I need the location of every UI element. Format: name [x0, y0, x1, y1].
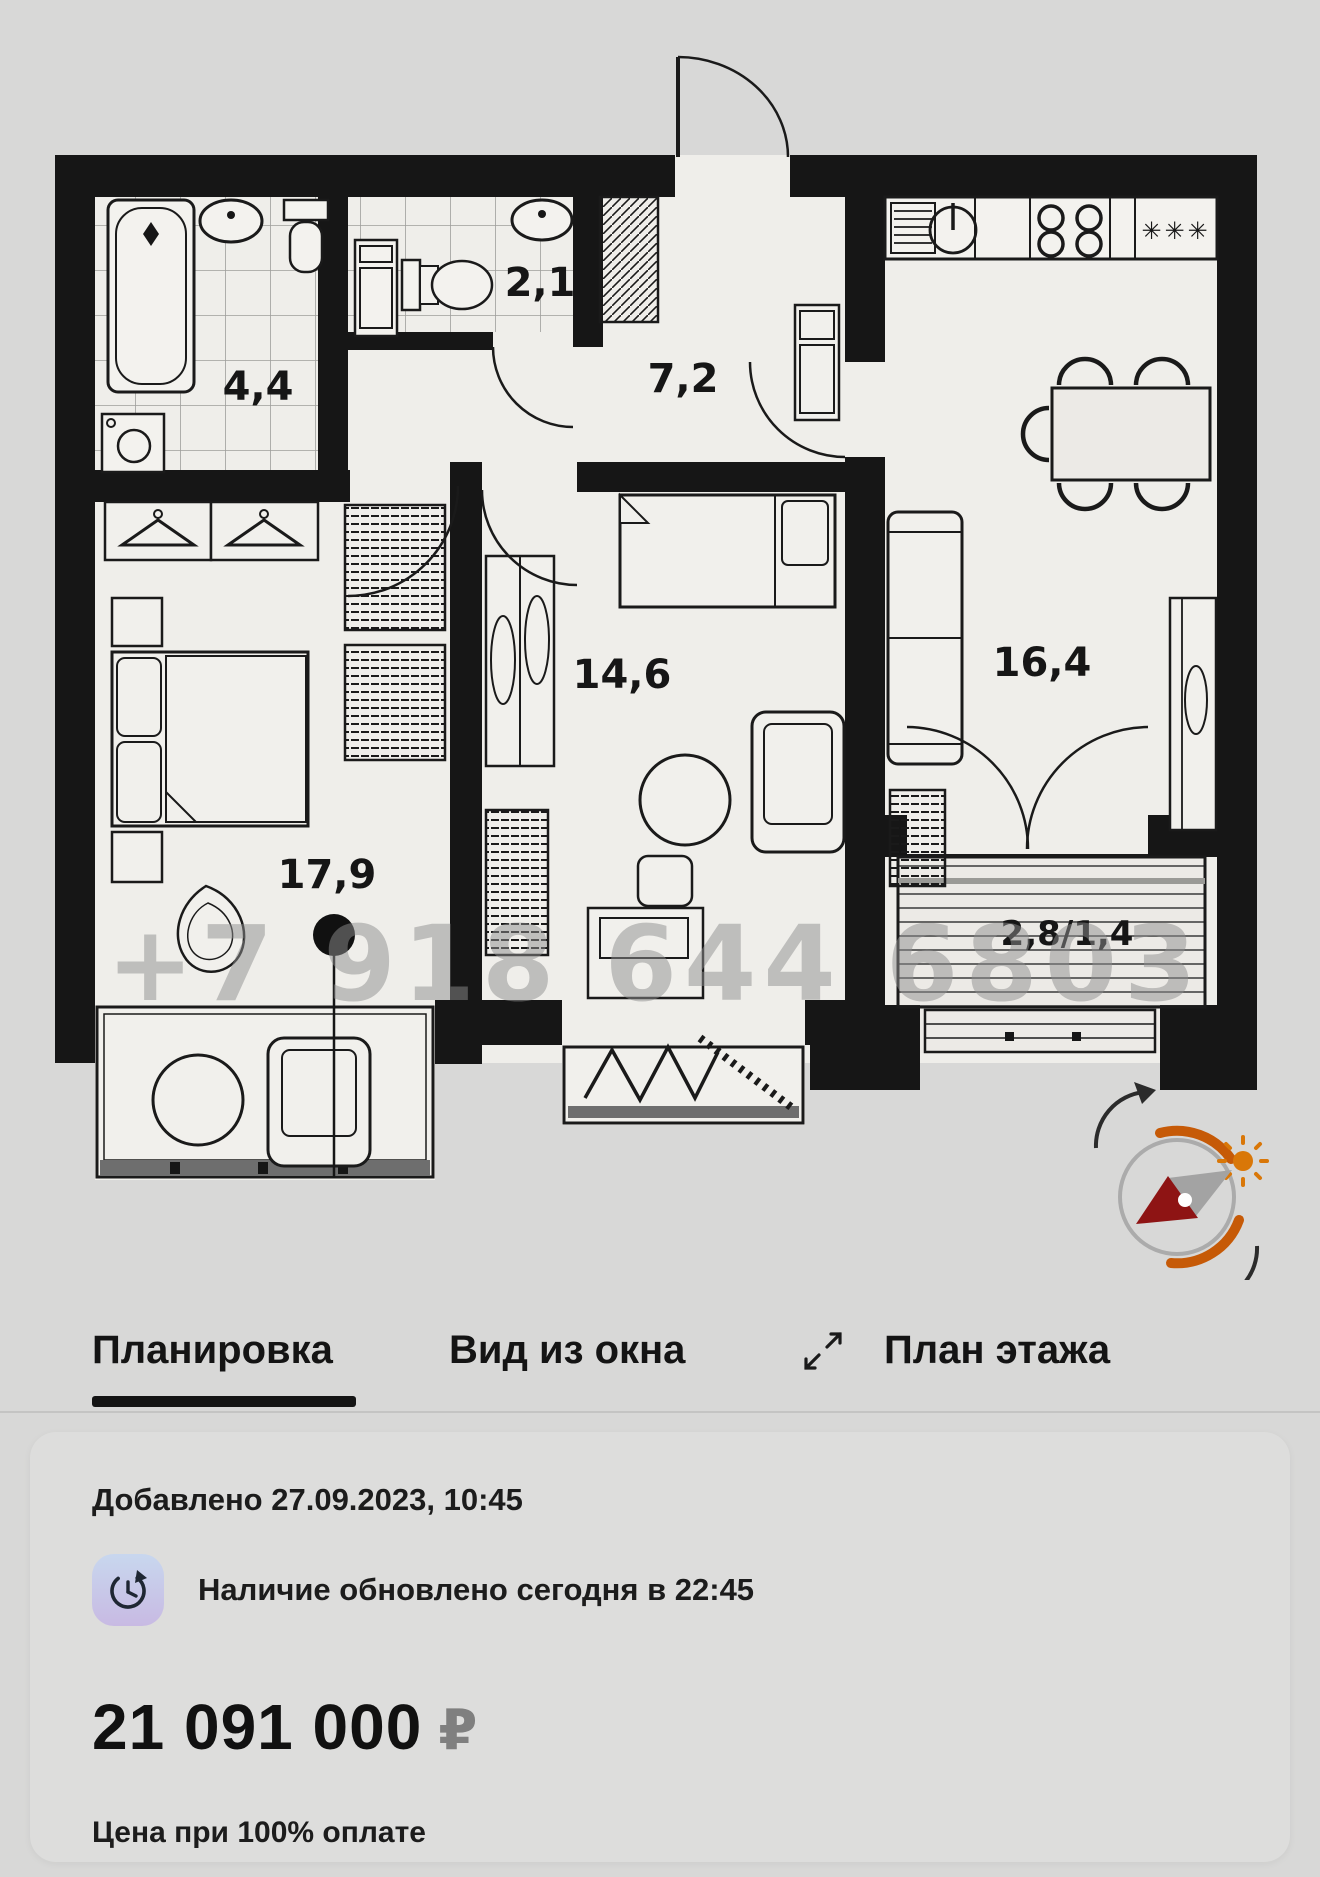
fridge-icon: ✳✳✳: [1141, 217, 1210, 245]
room-label-wc: 2,1: [505, 260, 576, 306]
hall-storage: [600, 197, 658, 322]
bedroom-armchair: [752, 712, 844, 852]
tabs-divider: [0, 1411, 1320, 1413]
availability-row: Наличие обновлено сегодня в 22:45: [92, 1554, 754, 1626]
round-table: [640, 755, 730, 845]
sofa: [888, 512, 962, 764]
added-date: Добавлено 27.09.2023, 10:45: [92, 1482, 523, 1518]
sun-icon: [1219, 1137, 1267, 1185]
master-armchair: [268, 1038, 370, 1166]
ruble-sign: ₽: [438, 1697, 477, 1763]
hall-cabinet: [795, 305, 839, 420]
tv-stand: [1170, 598, 1216, 830]
hanger-wardrobe: [105, 502, 318, 560]
pouf: [153, 1055, 243, 1145]
wc-toilet: [402, 260, 492, 310]
price-row: 21 091 000 ₽: [92, 1690, 477, 1764]
expand-icon[interactable]: [798, 1326, 848, 1376]
price-value: 21 091 000: [92, 1690, 422, 1764]
active-tab-indicator: [92, 1396, 356, 1407]
compass-icon[interactable]: [1096, 1082, 1267, 1280]
tab-layout[interactable]: Планировка: [92, 1328, 333, 1373]
needle-pivot: [1178, 1193, 1192, 1207]
tab-floor-plan[interactable]: План этажа: [884, 1328, 1110, 1373]
room-label-living: 16,4: [993, 640, 1092, 686]
room-label-bathroom: 4,4: [223, 364, 294, 410]
price-note: Цена при 100% оплате: [92, 1816, 426, 1850]
bathroom-sink: [200, 200, 262, 242]
room-label-master: 17,9: [278, 852, 377, 898]
room-label-bedroom: 14,6: [573, 652, 672, 698]
washing-machine: [102, 414, 164, 472]
availability-text: Наличие обновлено сегодня в 22:45: [198, 1572, 754, 1608]
bathroom-toilet: [284, 200, 328, 272]
watermark-phone: +7 918 644 6803: [107, 903, 1204, 1025]
bedroom-bed: [620, 495, 835, 607]
wc-washer: [355, 240, 397, 336]
room-label-hallway: 7,2: [648, 356, 719, 402]
info-card: Добавлено 27.09.2023, 10:45: [30, 1432, 1290, 1862]
bathtub: [108, 200, 194, 392]
wc-sink: [512, 200, 572, 240]
refresh-clock-icon: [92, 1554, 164, 1626]
listing-screen: ✳✳✳: [0, 0, 1320, 1877]
floor-plan-svg: ✳✳✳: [0, 0, 1320, 1280]
floor-plan: ✳✳✳: [0, 0, 1320, 1280]
tab-window-view[interactable]: Вид из окна: [449, 1328, 685, 1373]
